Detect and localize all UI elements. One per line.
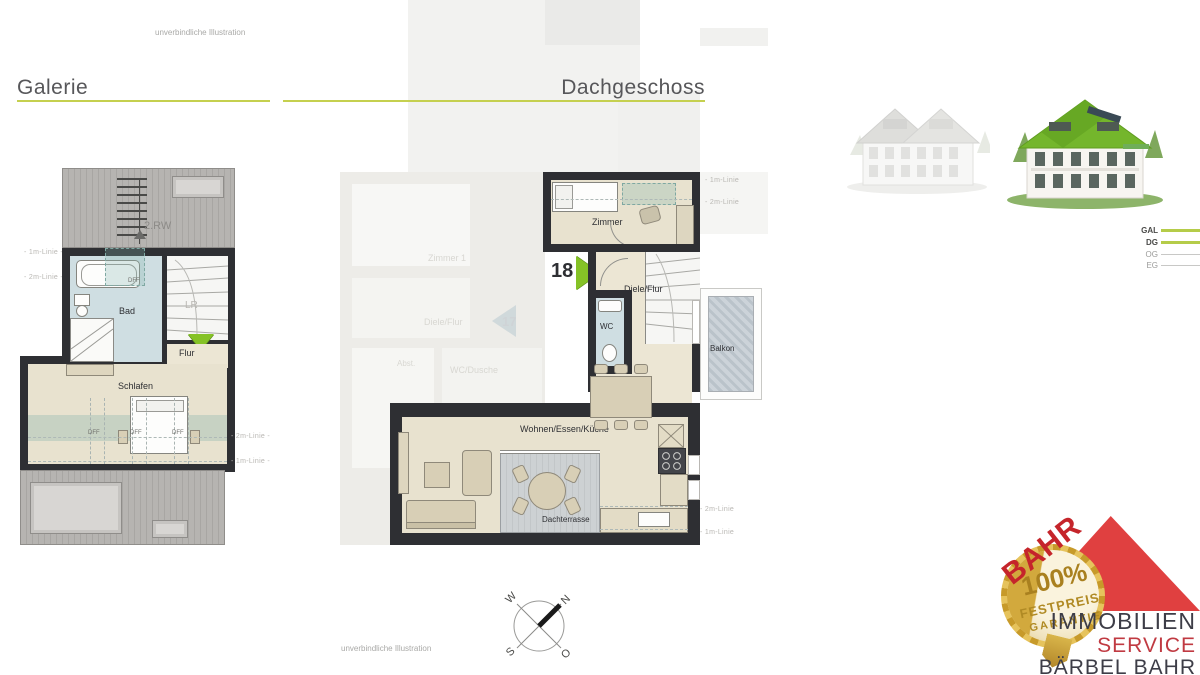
measure-label: - 2m-Linie - (231, 433, 270, 440)
legend-line-dg (1161, 241, 1200, 244)
floorplan-page: Zimmer 1 Diele/Flur Abst. WC/Dusche 17 u… (0, 0, 1200, 675)
dff-guide (104, 398, 105, 464)
company-logo: 100% FESTPREIS GARANTIE BAHR IMMOBILIEN … (995, 512, 1200, 675)
zimmer-bed-pillow (555, 185, 573, 209)
compass: W N S O (500, 586, 578, 664)
room-wc-label: WC (600, 322, 613, 331)
room-flur-label: Flur (179, 348, 195, 358)
bed-pillows (136, 400, 184, 412)
kitchen-sink (638, 512, 670, 527)
stair-lr-treads (167, 256, 228, 340)
disclaimer-bottom: unverbindliche Illustration (341, 644, 431, 653)
kitchen-stove (658, 448, 686, 474)
dff-guide (188, 398, 189, 464)
window-gap (688, 480, 700, 500)
dff-label: DFF (88, 430, 100, 436)
ghost-room-label: Zimmer 1 (428, 253, 466, 263)
legend-label-dg: DG (1146, 238, 1158, 247)
dff-label: DFF (172, 430, 184, 436)
logo-service: SERVICE (1097, 634, 1196, 658)
ghost-block (700, 28, 768, 46)
terrace-door-line (500, 450, 600, 454)
dining-chair (614, 420, 628, 430)
building-render-context (845, 95, 990, 195)
logo-baerbel-bahr: BÄRBEL BAHR (1039, 656, 1196, 675)
dff-bath-label: DFF (128, 278, 140, 284)
room-schlafen-label: Schlafen (118, 381, 153, 391)
unit-number: 18 (551, 260, 573, 283)
building-highlight-svg (1005, 92, 1165, 210)
galerie-roof-skylight (30, 482, 122, 534)
room-balkon-label: Balkon (710, 344, 734, 353)
dff-guide (146, 398, 147, 464)
measure-label: - 1m-Linie - (24, 249, 63, 256)
wc-toilet (602, 344, 617, 362)
galerie-roof-skylight (172, 176, 224, 198)
dff-label: DFF (130, 430, 142, 436)
window-gap (688, 455, 700, 475)
measure-line-1m (600, 529, 688, 530)
room-bad-label: Bad (119, 306, 135, 316)
building-context-svg (845, 95, 990, 195)
measure-label: - 1m-Linie (705, 177, 739, 184)
legend-line-eg (1161, 265, 1200, 266)
legend-line-og (1161, 254, 1200, 255)
ghost-unit-number: 17 (502, 314, 516, 329)
dining-chair (614, 364, 628, 374)
measure-line-2m (600, 506, 688, 507)
building-render-highlight (1005, 92, 1165, 210)
sofa-back (406, 522, 476, 529)
dining-table (590, 376, 652, 418)
logo-immobilien: IMMOBILIEN (1051, 608, 1196, 635)
wc-sink (598, 300, 622, 312)
dining-chair (594, 420, 608, 430)
shower-hatch (71, 319, 113, 361)
ghost-room-label: Abst. (397, 359, 415, 368)
ghost-room-label: Diele/Flur (424, 317, 463, 327)
legend-label-eg: EG (1146, 261, 1158, 270)
measure-label: - 2m-Linie - (24, 274, 63, 281)
measure-line-2m (28, 437, 227, 438)
legend-label-gal: GAL (1141, 226, 1158, 235)
heading-underline-left (17, 100, 270, 102)
schlafen-step (66, 364, 114, 376)
heading-dachgeschoss: Dachgeschoss (561, 76, 705, 100)
shower (70, 318, 114, 362)
legend-line-gal (1161, 229, 1200, 232)
escape-route-label: 2.RW (144, 220, 171, 232)
ghost-block (545, 0, 640, 45)
legend-label-og: OG (1146, 250, 1158, 259)
tv-board (398, 432, 409, 494)
ghost-room-label: WC/Dusche (450, 365, 498, 375)
kitchen-counter-right (660, 474, 688, 506)
armchair (462, 450, 492, 496)
heading-galerie: Galerie (17, 76, 88, 100)
disclaimer-top: unverbindliche Illustration (155, 28, 245, 37)
zimmer-desk (622, 183, 676, 205)
dining-chair (634, 364, 648, 374)
dining-chair (594, 364, 608, 374)
zimmer-wardrobe (676, 205, 694, 245)
measure-label: - 1m-Linie - (231, 458, 270, 465)
kitchen-pantry (658, 424, 684, 448)
escape-ladder (117, 178, 147, 236)
kitchen-pantry-x (659, 425, 683, 447)
measure-label: - 2m-Linie (705, 199, 739, 206)
stair-lr: LR (167, 256, 228, 340)
pouf (424, 462, 450, 488)
ghost-room (352, 278, 470, 338)
ghost-block (618, 90, 700, 172)
room-terrasse-label: Dachterrasse (542, 515, 590, 524)
measure-line-1m (28, 461, 227, 462)
window-gap (692, 300, 700, 344)
measure-line-2m (551, 199, 692, 200)
measure-label: - 1m-Linie (700, 529, 734, 536)
dining-chair (634, 420, 648, 430)
stair-lr-label: LR (185, 300, 198, 311)
toilet-bowl (76, 305, 88, 317)
room-schlafen (28, 364, 227, 464)
floor-legend: GAL DG OG EG (1130, 226, 1200, 274)
stove-burners (659, 449, 685, 473)
terrace-table (528, 472, 566, 510)
measure-label: - 2m-Linie (700, 506, 734, 513)
galerie-roof-skylight (152, 520, 188, 538)
heading-underline-right (283, 100, 705, 102)
